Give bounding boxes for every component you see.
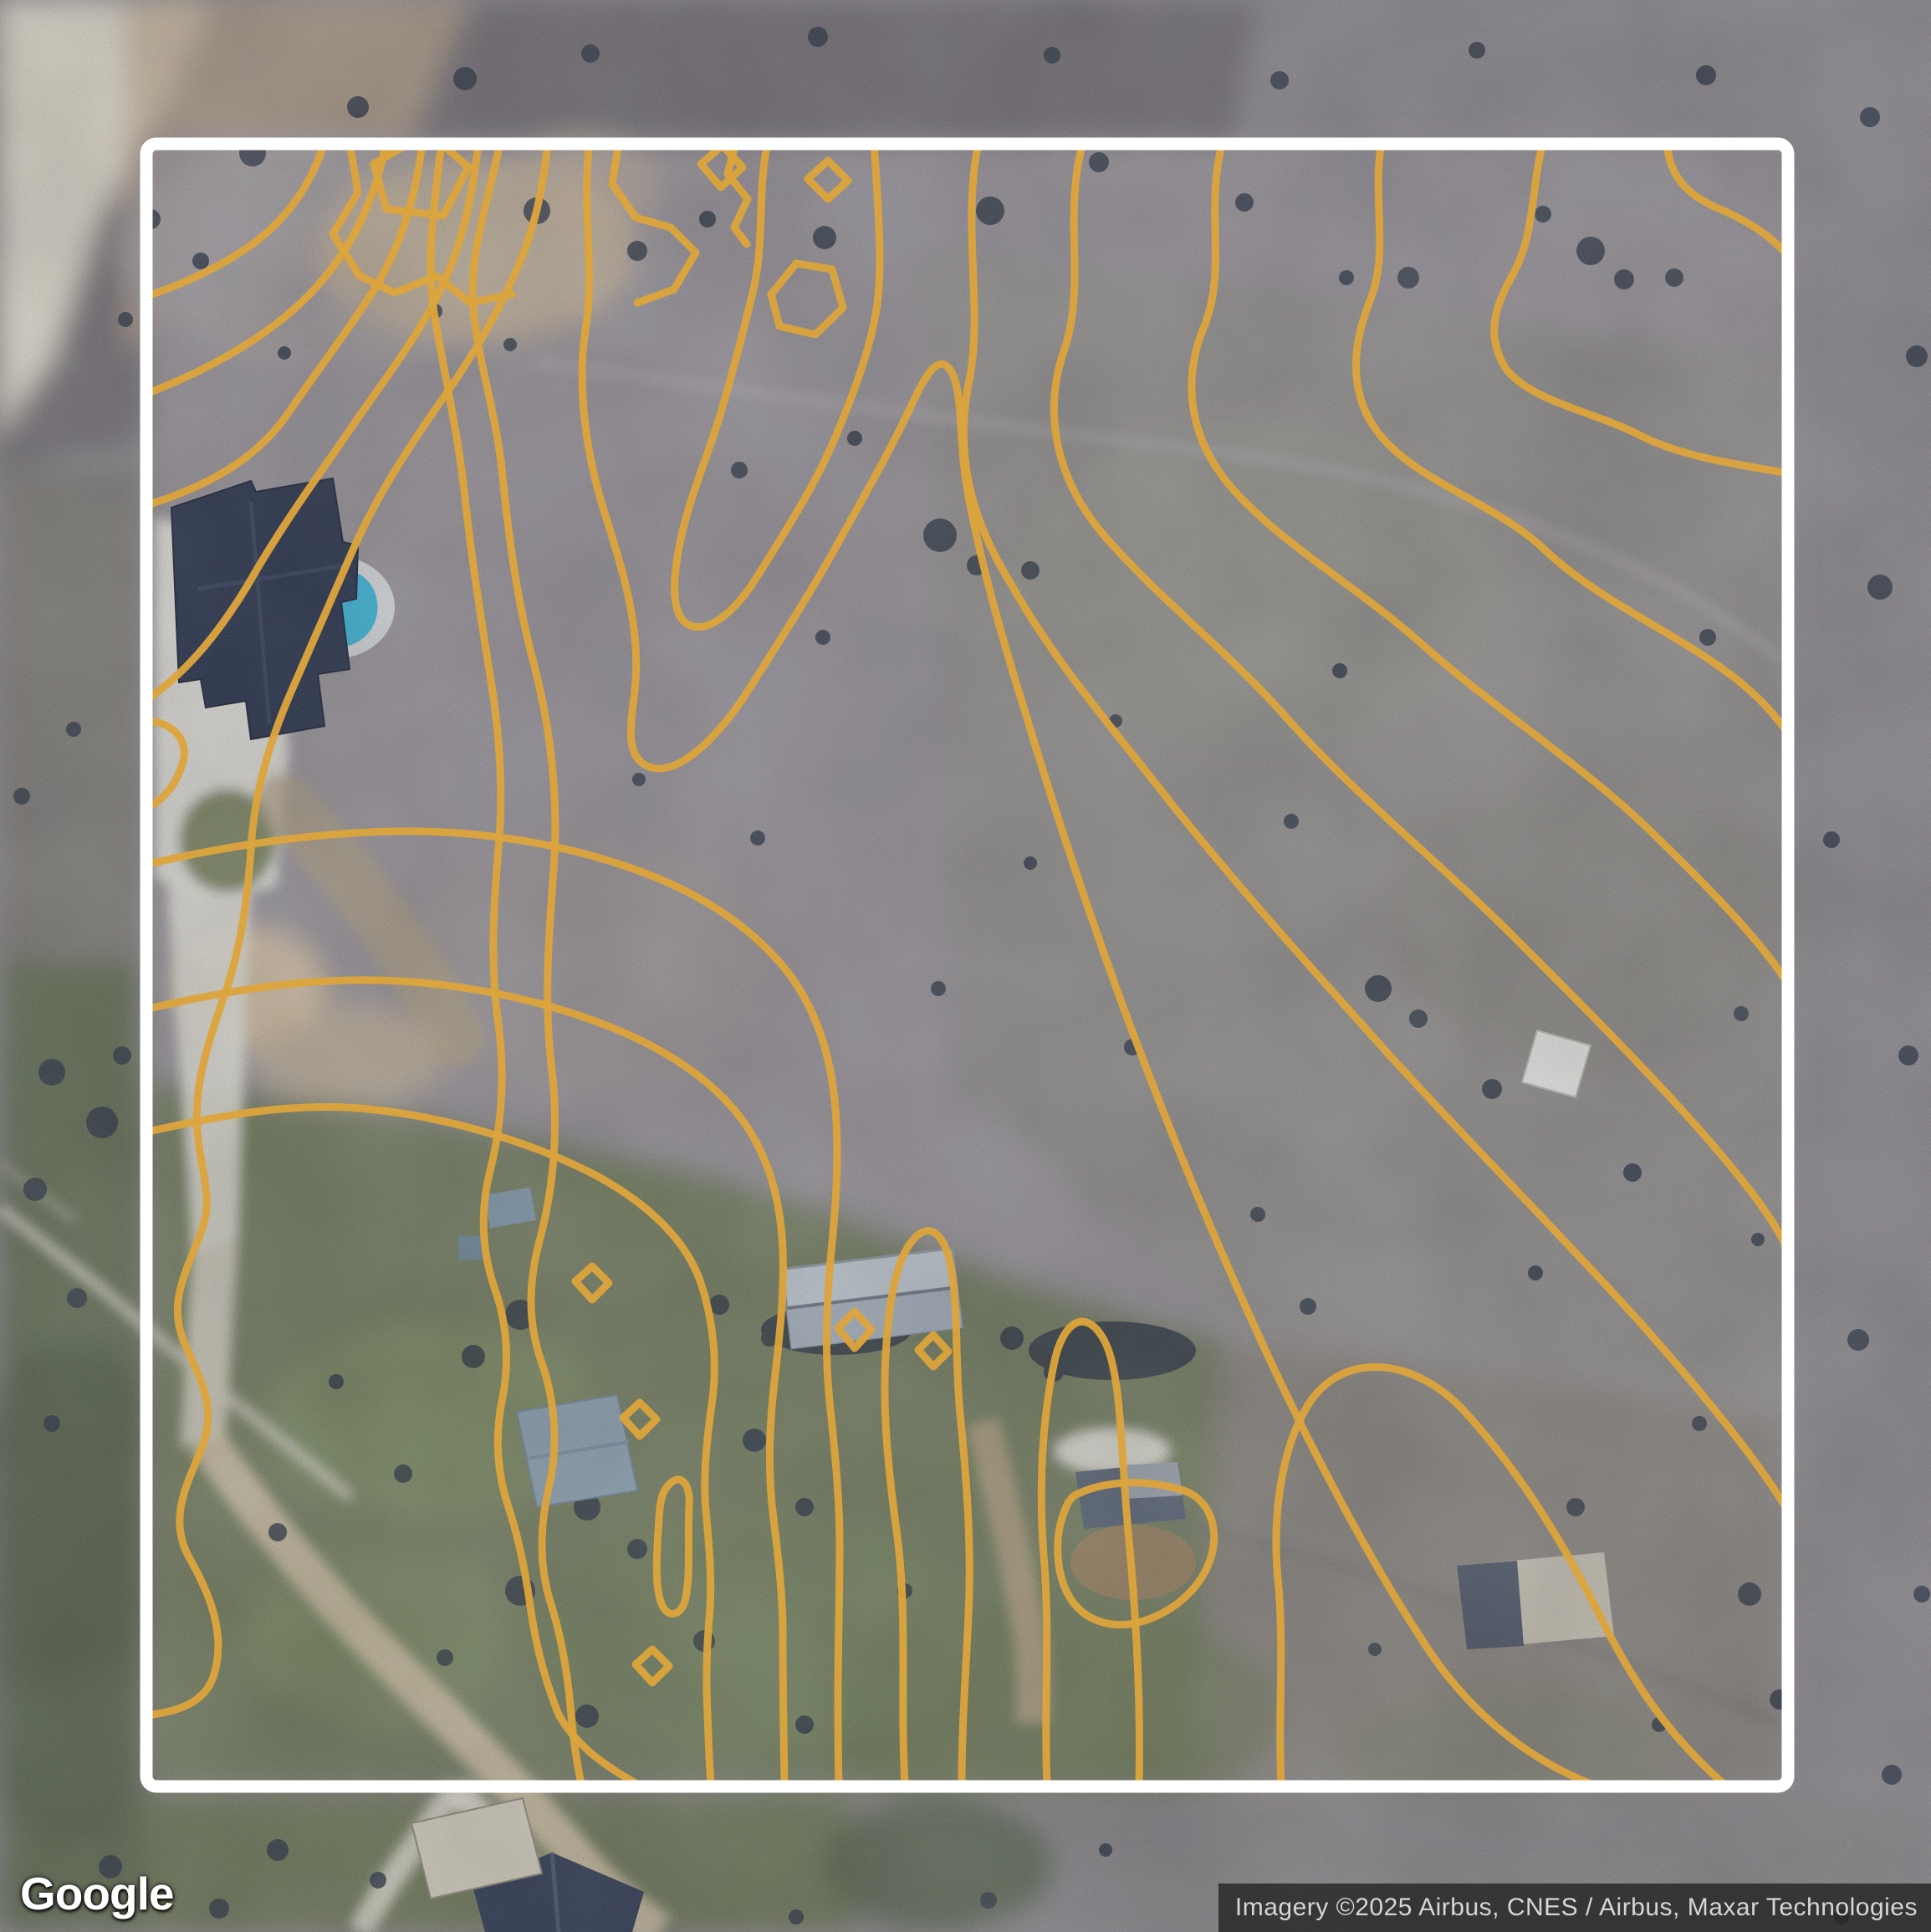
google-logo[interactable]: Google — [20, 1867, 173, 1920]
attribution-bar: Imagery ©2025 Airbus, CNES / Airbus, Max… — [1218, 1883, 1931, 1932]
map-canvas[interactable]: Google Imagery ©2025 Airbus, CNES / Airb… — [0, 0, 1931, 1932]
attribution-text: Imagery ©2025 Airbus, CNES / Airbus, Max… — [1235, 1894, 1918, 1922]
satellite-imagery — [0, 0, 1931, 1932]
